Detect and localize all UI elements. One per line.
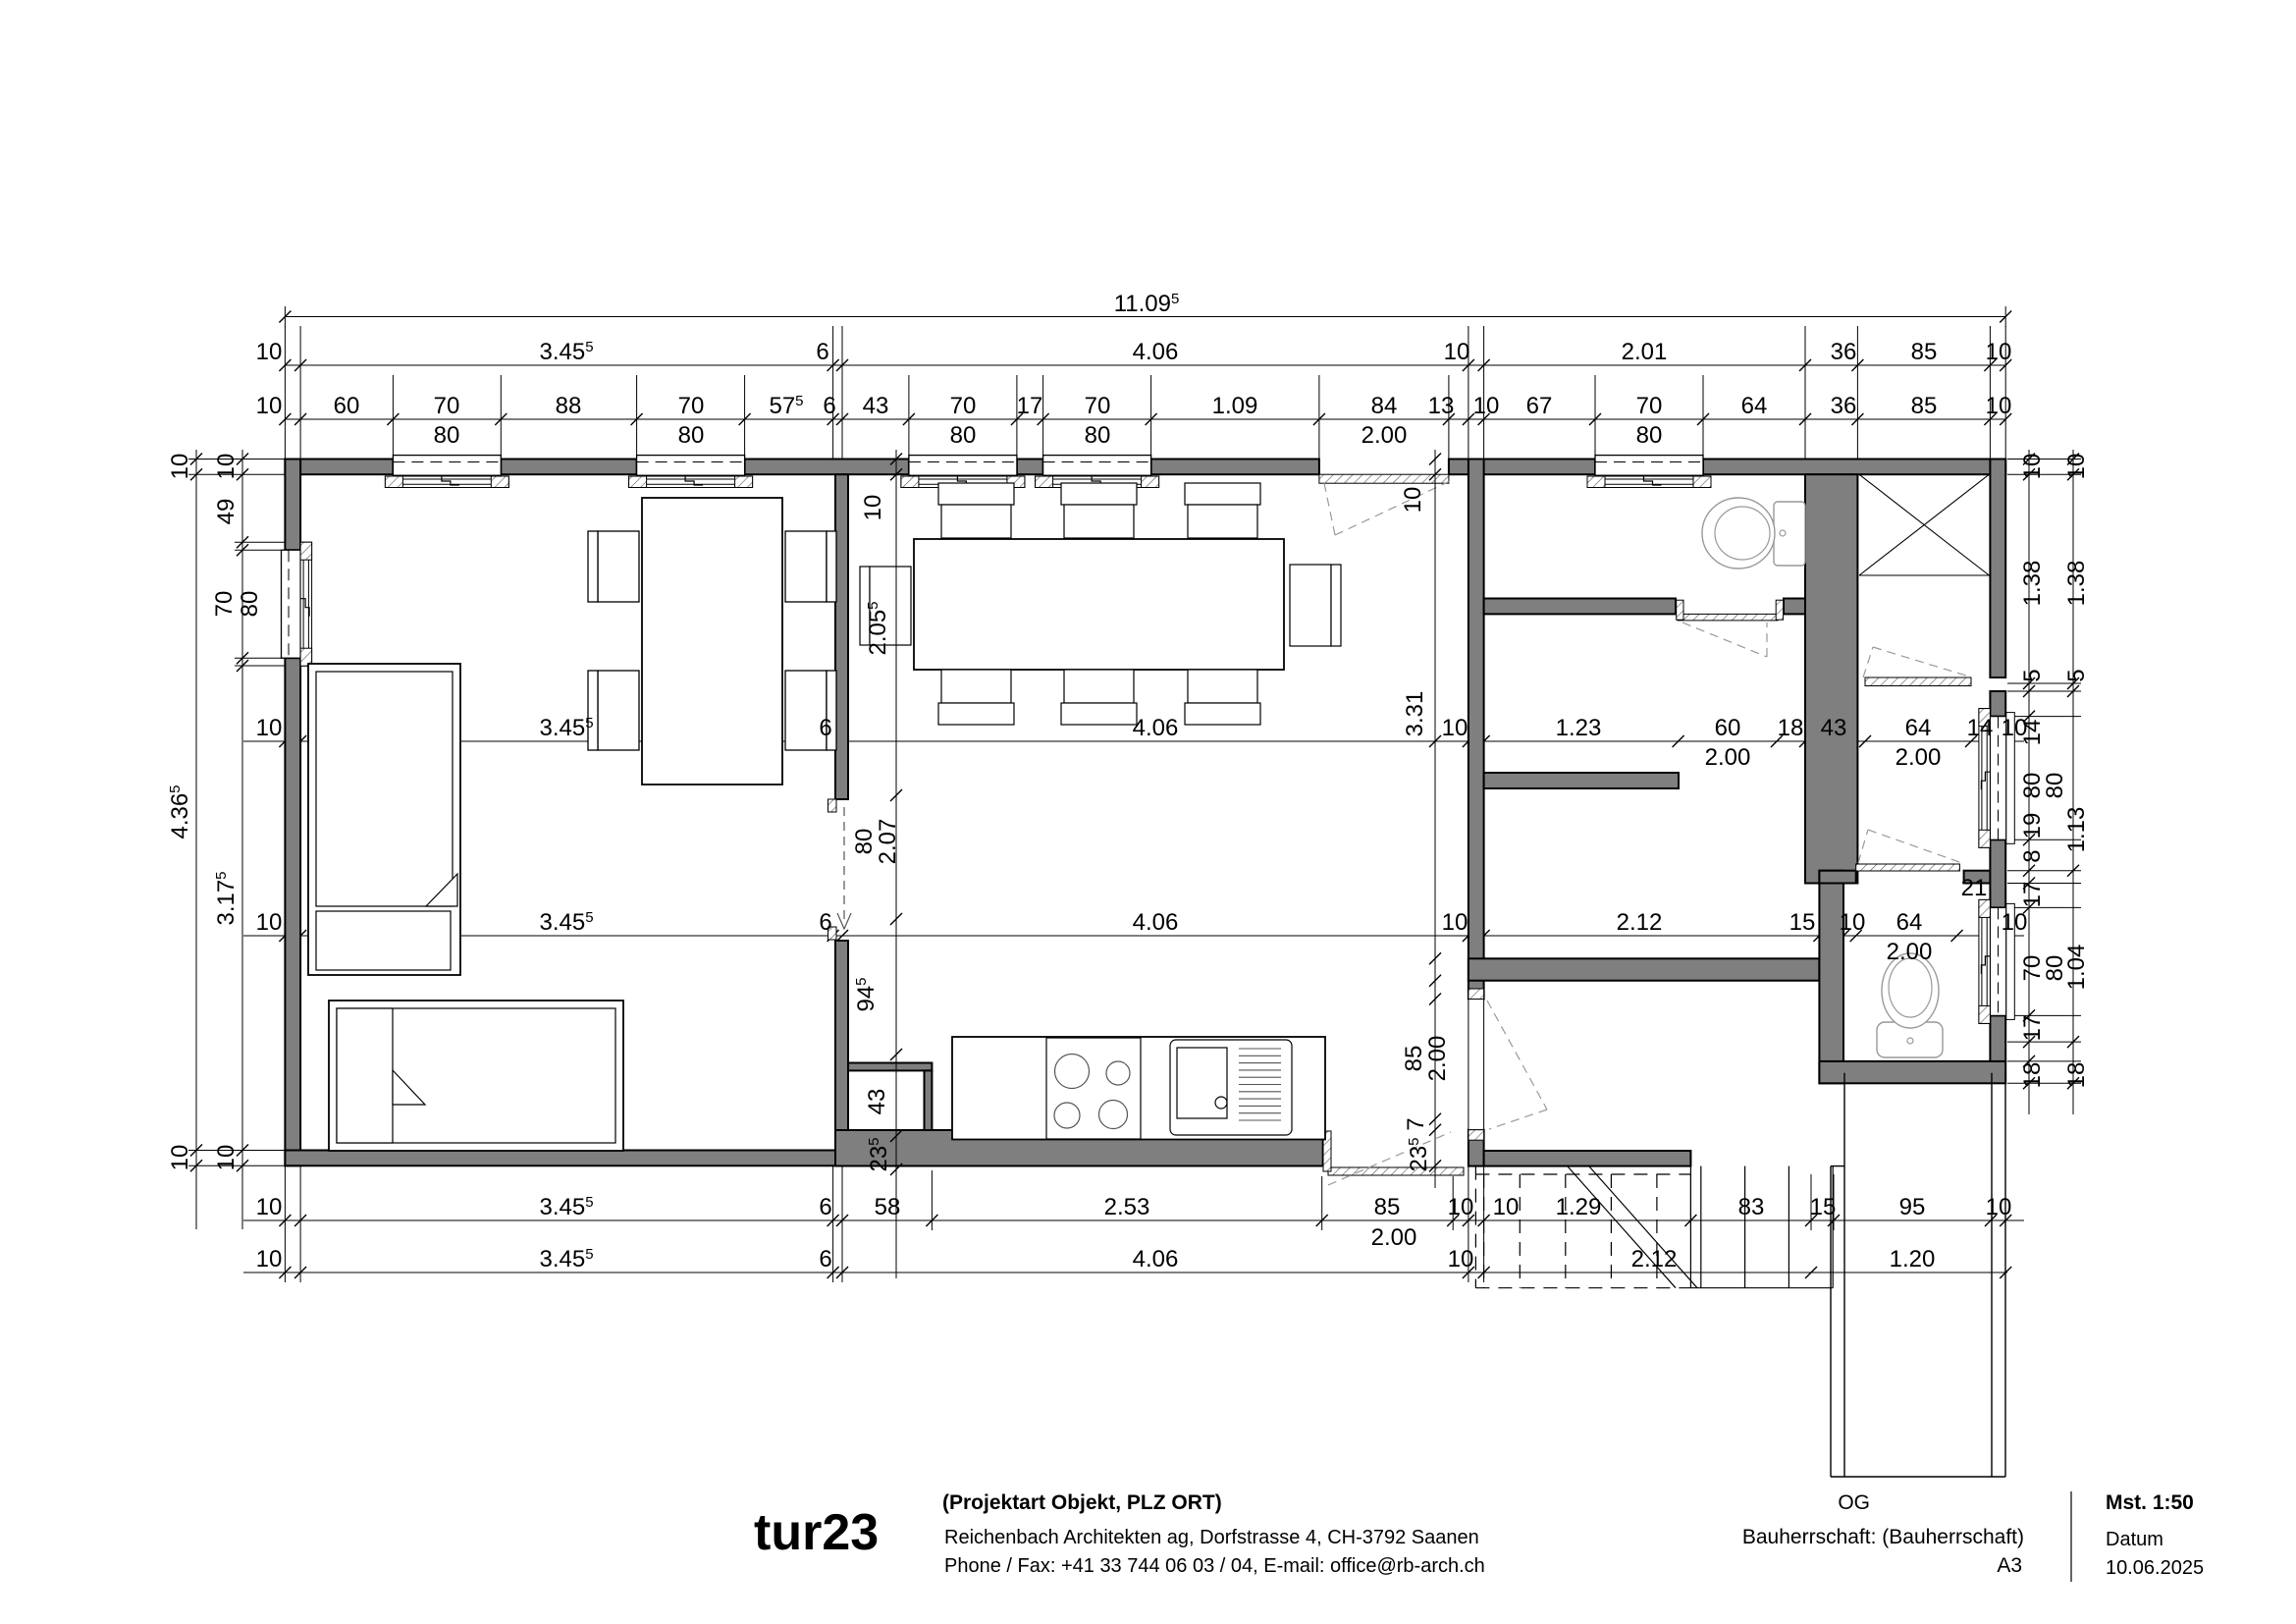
svg-text:64: 64 bbox=[1905, 715, 1932, 741]
svg-text:70: 70 bbox=[1085, 393, 1111, 419]
svg-text:10: 10 bbox=[1442, 909, 1468, 936]
svg-text:10: 10 bbox=[860, 495, 886, 521]
svg-text:8: 8 bbox=[2019, 849, 2046, 862]
svg-text:A3: A3 bbox=[1997, 1554, 2022, 1577]
svg-text:95: 95 bbox=[1899, 1194, 1926, 1220]
svg-text:18: 18 bbox=[2063, 1062, 2090, 1089]
svg-text:10: 10 bbox=[1986, 1194, 2012, 1220]
svg-text:10: 10 bbox=[1400, 487, 1426, 514]
svg-text:1.38: 1.38 bbox=[2063, 561, 2090, 607]
svg-text:80: 80 bbox=[1085, 422, 1111, 449]
svg-text:2.00: 2.00 bbox=[1705, 744, 1751, 771]
svg-text:43: 43 bbox=[863, 393, 889, 419]
svg-text:85: 85 bbox=[1911, 339, 1938, 365]
svg-text:83: 83 bbox=[1738, 1194, 1765, 1220]
svg-text:70: 70 bbox=[434, 393, 460, 419]
svg-text:6: 6 bbox=[823, 393, 835, 419]
svg-text:10: 10 bbox=[213, 454, 240, 480]
svg-text:4.06: 4.06 bbox=[1133, 339, 1179, 365]
svg-text:60: 60 bbox=[334, 393, 360, 419]
svg-text:64: 64 bbox=[1896, 909, 1923, 936]
svg-text:Datum: Datum bbox=[2106, 1529, 2163, 1550]
svg-text:10: 10 bbox=[256, 715, 283, 741]
svg-text:10: 10 bbox=[256, 909, 283, 936]
svg-text:1.09: 1.09 bbox=[1212, 393, 1258, 419]
svg-text:67: 67 bbox=[1526, 393, 1553, 419]
svg-text:11.095: 11.095 bbox=[1114, 291, 1180, 317]
svg-text:1.23: 1.23 bbox=[1556, 715, 1602, 741]
svg-text:10: 10 bbox=[2002, 909, 2028, 936]
svg-text:4.06: 4.06 bbox=[1133, 909, 1179, 936]
svg-text:10: 10 bbox=[2019, 454, 2046, 480]
svg-text:14: 14 bbox=[1967, 715, 1994, 741]
svg-text:85: 85 bbox=[1401, 1046, 1427, 1072]
svg-text:tur23: tur23 bbox=[754, 1504, 879, 1561]
svg-text:2.00: 2.00 bbox=[1362, 422, 1408, 449]
svg-text:17: 17 bbox=[2019, 882, 2046, 908]
svg-text:80: 80 bbox=[851, 829, 878, 855]
svg-text:10: 10 bbox=[256, 1194, 283, 1220]
svg-text:43: 43 bbox=[864, 1089, 890, 1115]
svg-text:6: 6 bbox=[819, 909, 831, 936]
svg-text:10: 10 bbox=[1986, 339, 2012, 365]
svg-text:60: 60 bbox=[1715, 715, 1741, 741]
svg-text:80: 80 bbox=[678, 422, 705, 449]
svg-text:10: 10 bbox=[2063, 454, 2090, 480]
svg-text:Reichenbach Architekten ag, Do: Reichenbach Architekten ag, Dorfstrasse … bbox=[944, 1527, 1479, 1548]
svg-text:1.04: 1.04 bbox=[2063, 945, 2090, 991]
svg-text:Phone / Fax: +41 33 744 06 03: Phone / Fax: +41 33 744 06 03 / 04, E-ma… bbox=[944, 1555, 1485, 1577]
svg-text:80: 80 bbox=[2042, 773, 2068, 799]
svg-text:10: 10 bbox=[167, 454, 193, 480]
svg-text:6: 6 bbox=[816, 339, 828, 365]
svg-text:4.06: 4.06 bbox=[1133, 1246, 1179, 1272]
svg-text:18: 18 bbox=[1778, 715, 1804, 741]
svg-text:80: 80 bbox=[237, 591, 263, 618]
svg-text:49: 49 bbox=[213, 499, 240, 525]
svg-text:43: 43 bbox=[1821, 715, 1847, 741]
svg-text:85: 85 bbox=[1911, 393, 1938, 419]
svg-text:10: 10 bbox=[256, 339, 283, 365]
svg-text:1.29: 1.29 bbox=[1556, 1194, 1602, 1220]
svg-text:18: 18 bbox=[2019, 1062, 2046, 1089]
svg-text:88: 88 bbox=[556, 393, 582, 419]
svg-text:2.00: 2.00 bbox=[1887, 939, 1933, 965]
svg-text:70: 70 bbox=[211, 591, 238, 618]
svg-text:10: 10 bbox=[1473, 393, 1500, 419]
svg-text:2.12: 2.12 bbox=[1617, 909, 1663, 936]
svg-text:2.07: 2.07 bbox=[875, 819, 901, 865]
svg-text:14: 14 bbox=[2019, 720, 2046, 746]
svg-text:10.06.2025: 10.06.2025 bbox=[2106, 1557, 2204, 1579]
svg-text:10: 10 bbox=[1448, 1194, 1474, 1220]
svg-text:1.38: 1.38 bbox=[2019, 561, 2046, 607]
svg-text:OG: OG bbox=[1838, 1491, 1870, 1514]
svg-text:10: 10 bbox=[213, 1145, 240, 1171]
svg-text:21: 21 bbox=[1961, 875, 1988, 901]
svg-text:Mst. 1:50: Mst. 1:50 bbox=[2106, 1491, 2194, 1514]
svg-text:5: 5 bbox=[2019, 669, 2046, 681]
svg-text:2.53: 2.53 bbox=[1104, 1194, 1150, 1220]
svg-text:2.12: 2.12 bbox=[1631, 1246, 1678, 1272]
svg-text:10: 10 bbox=[1442, 715, 1468, 741]
svg-text:10: 10 bbox=[1448, 1246, 1474, 1272]
svg-text:80: 80 bbox=[434, 422, 460, 449]
svg-text:70: 70 bbox=[950, 393, 977, 419]
svg-text:10: 10 bbox=[1444, 339, 1470, 365]
svg-text:85: 85 bbox=[1374, 1194, 1401, 1220]
svg-text:15: 15 bbox=[1789, 909, 1816, 936]
svg-text:2.01: 2.01 bbox=[1622, 339, 1668, 365]
svg-text:10: 10 bbox=[256, 393, 283, 419]
svg-text:6: 6 bbox=[819, 715, 831, 741]
svg-text:36: 36 bbox=[1831, 339, 1857, 365]
svg-text:13: 13 bbox=[1428, 393, 1455, 419]
svg-text:(Projektart Objekt, PLZ ORT): (Projektart Objekt, PLZ ORT) bbox=[942, 1491, 1222, 1514]
svg-text:1.13: 1.13 bbox=[2063, 807, 2090, 853]
svg-text:70: 70 bbox=[678, 393, 705, 419]
svg-text:84: 84 bbox=[1371, 393, 1398, 419]
svg-text:64: 64 bbox=[1741, 393, 1768, 419]
svg-text:17: 17 bbox=[1017, 393, 1043, 419]
svg-text:10: 10 bbox=[1840, 909, 1866, 936]
svg-text:80: 80 bbox=[1636, 422, 1663, 449]
svg-text:7: 7 bbox=[1403, 1117, 1429, 1130]
svg-text:1.20: 1.20 bbox=[1890, 1246, 1936, 1272]
svg-text:2.00: 2.00 bbox=[1371, 1224, 1417, 1251]
svg-text:10: 10 bbox=[256, 1246, 283, 1272]
svg-text:5: 5 bbox=[2063, 669, 2090, 681]
svg-text:6: 6 bbox=[819, 1246, 831, 1272]
svg-text:6: 6 bbox=[819, 1194, 831, 1220]
svg-text:80: 80 bbox=[950, 422, 977, 449]
svg-text:10: 10 bbox=[167, 1145, 193, 1171]
svg-text:2.00: 2.00 bbox=[1896, 744, 1942, 771]
svg-text:19: 19 bbox=[2019, 813, 2046, 839]
svg-text:Bauherrschaft: (Bauherrschaft): Bauherrschaft: (Bauherrschaft) bbox=[1742, 1526, 2024, 1548]
svg-text:3.31: 3.31 bbox=[1402, 691, 1428, 737]
svg-text:15: 15 bbox=[1810, 1194, 1837, 1220]
svg-text:36: 36 bbox=[1831, 393, 1857, 419]
svg-text:2.00: 2.00 bbox=[1424, 1036, 1451, 1082]
svg-text:4.06: 4.06 bbox=[1133, 715, 1179, 741]
svg-text:10: 10 bbox=[1986, 393, 2012, 419]
svg-text:10: 10 bbox=[1493, 1194, 1520, 1220]
svg-text:17: 17 bbox=[2019, 1015, 2046, 1042]
svg-text:70: 70 bbox=[1636, 393, 1663, 419]
